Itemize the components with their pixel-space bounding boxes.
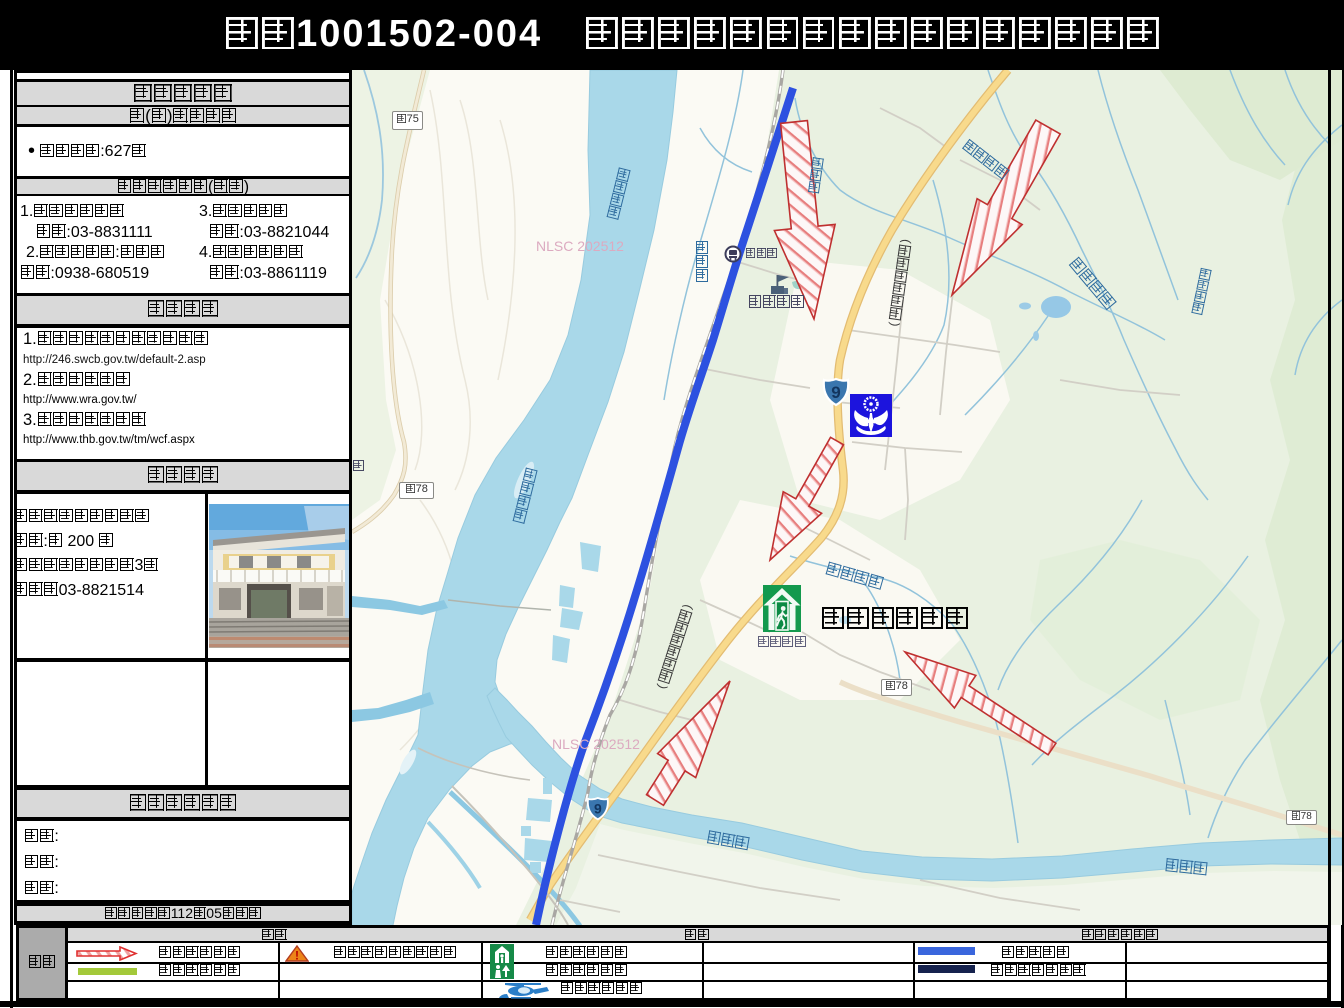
svg-text:9: 9 xyxy=(594,801,602,817)
svg-text:9: 9 xyxy=(831,383,840,402)
svg-text:!: ! xyxy=(295,949,299,963)
